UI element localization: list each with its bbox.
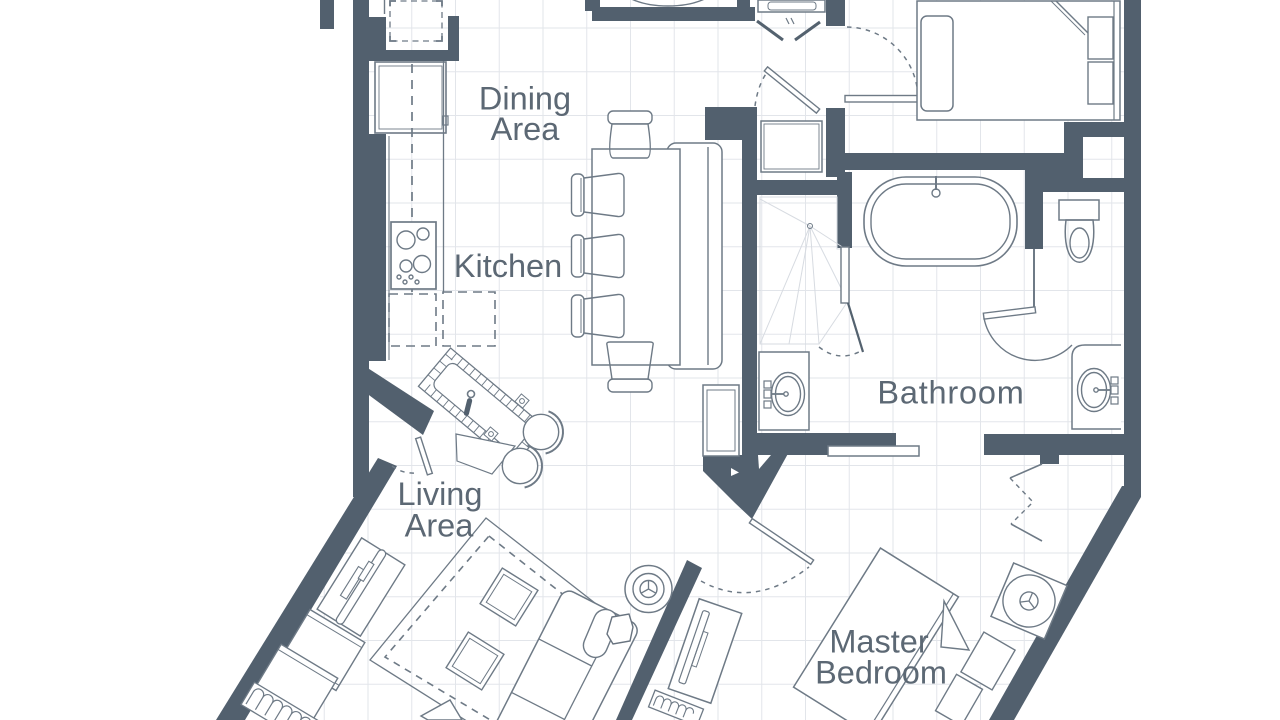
svg-text:Bedroom: Bedroom: [815, 655, 947, 691]
svg-text:Bathroom: Bathroom: [877, 375, 1024, 411]
svg-text:Area: Area: [405, 508, 475, 544]
svg-text:Area: Area: [491, 111, 561, 147]
svg-text:Kitchen: Kitchen: [454, 248, 562, 284]
